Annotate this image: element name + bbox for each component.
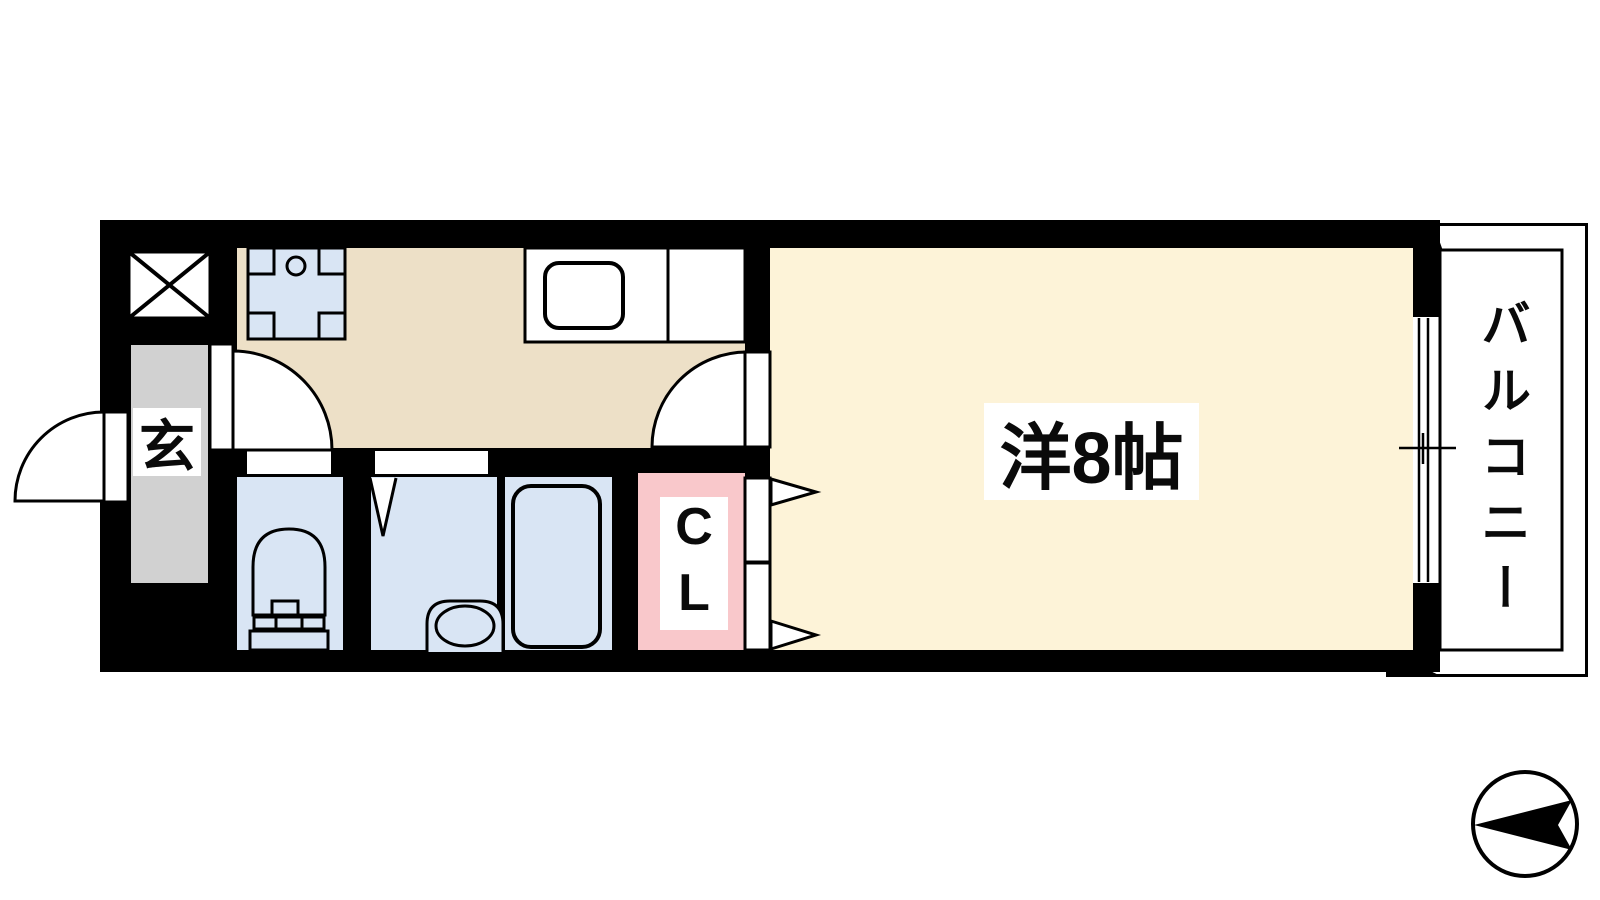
room-bathroom (505, 477, 612, 650)
main-room-label: 洋8帖 (984, 403, 1199, 500)
toilet-door-opening (245, 449, 333, 476)
balcony-label: バルコニー (1450, 268, 1554, 658)
closet-label-text: CL (664, 498, 724, 630)
room-washroom (371, 477, 497, 650)
closet-label: CL (660, 497, 728, 630)
room-toilet (237, 477, 343, 650)
floor-plan-canvas: 玄 CL 洋8帖 バルコニー (0, 0, 1600, 900)
balcony-window-opening (1413, 317, 1440, 583)
compass-icon (1473, 772, 1577, 876)
entrance-label-text: 玄 (139, 402, 195, 483)
main-room-label-text: 洋8帖 (999, 399, 1183, 504)
washroom-door-opening (373, 449, 490, 476)
room-kitchen-dining (237, 248, 745, 448)
entrance-label: 玄 (133, 408, 201, 476)
balcony-label-text: バルコニー (1466, 298, 1538, 628)
